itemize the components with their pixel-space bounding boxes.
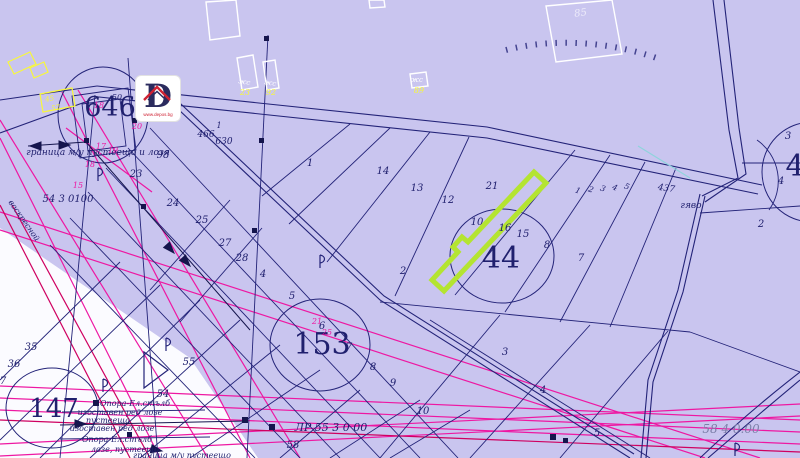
parcel-number: 7 (578, 253, 585, 264)
parcel-number: 19 (108, 146, 118, 155)
building-number: 23 (239, 88, 250, 97)
parcel-number: 2 (399, 266, 406, 277)
parcel-number: 36 (8, 359, 21, 370)
parcel-number: 17 (96, 142, 107, 151)
legend-label: Опора-Ел.стълб (82, 435, 152, 444)
parcel-number: 4 (539, 385, 546, 396)
coordinate-label: ЛР 55 3 0 00 (294, 421, 368, 434)
parcel-number: 35 (25, 342, 38, 353)
zone-number-646: 646 (84, 92, 136, 123)
parcel-number: 18 (94, 101, 104, 110)
parcel-number: 1 (216, 121, 221, 130)
zone-number-right: 4 (785, 149, 800, 184)
logo-url: www.depos.bg (143, 112, 173, 117)
parcel-number: 466 (196, 130, 214, 140)
legend-label: Опора-Ел.стълб (100, 399, 170, 408)
parcel-number: 15 (73, 181, 83, 190)
parcel-number: 1 (307, 158, 313, 169)
watermark-logo: D www.depos.bg (136, 76, 180, 121)
parcel-number: 54 (157, 389, 170, 400)
parcel-number: 7 (346, 342, 353, 353)
parcel-number: 2 (757, 219, 764, 230)
parcel-number: 8 (544, 240, 550, 251)
parcel-number: 58 (287, 440, 300, 451)
parcel-number: 21 (311, 317, 322, 326)
building-type: жс (411, 76, 423, 84)
parcel-number: 4 (259, 269, 266, 280)
cadastral-map-canvas[interactable]: 646441531474граница м/у пустеещо и лозя5… (0, 0, 800, 458)
parcel-number: 10 (471, 217, 484, 228)
parcel-number: 13 (411, 183, 424, 194)
building-number: 85 (574, 7, 588, 20)
parcel-number: 7 (0, 376, 7, 387)
parcel-number: 10 (417, 406, 430, 417)
parcel-number: 50 (112, 93, 122, 102)
parcel-number: 5 (594, 428, 600, 439)
coordinate-label: 54 3 0100 (43, 194, 95, 205)
parcel-number: 28 (235, 253, 249, 264)
parcel-number: 8 (370, 362, 376, 373)
parcel-number: 3 (502, 347, 508, 358)
zone-number-147: 147 (29, 394, 79, 424)
parcel-number: 14 (377, 166, 390, 177)
parcel-number: 25 (195, 215, 209, 226)
parcel-number: 12 (442, 195, 455, 206)
parcel-number: 15 (517, 229, 530, 240)
parcel-number: 18 (85, 160, 95, 169)
parcel-number: 25 (321, 328, 332, 337)
parcel-number: 20 (131, 122, 142, 131)
coordinate-label: 58 4 0.00 (702, 422, 760, 436)
parcel-number: 27 (218, 238, 232, 249)
parcel-number: 23 (129, 169, 143, 180)
parcel-number: 630 (215, 137, 232, 147)
legend-label: граница м/у пустеещо (133, 451, 231, 458)
place-name: гяво (680, 201, 702, 211)
parcel-number: 3 (785, 131, 791, 142)
parcel-number: 55 (183, 357, 196, 368)
parcel-number: 24 (166, 198, 180, 209)
building-number: 89 (414, 86, 424, 95)
parcel-number: 98 (157, 150, 170, 161)
parcel-number: 21 (485, 181, 499, 192)
parcel-number: 4 (777, 176, 784, 187)
parcel-number: 5 (289, 291, 295, 302)
map-drawing: 646441531474граница м/у пустеещо и лозя5… (0, 0, 800, 458)
zone-number-44: 44 (482, 241, 520, 276)
legend-label: изоставен ред лозе (70, 424, 155, 433)
parcel-number: 16 (499, 223, 512, 234)
building-number: 92 (266, 88, 276, 97)
parcel-number: 9 (390, 378, 397, 389)
map-background (0, 0, 800, 458)
